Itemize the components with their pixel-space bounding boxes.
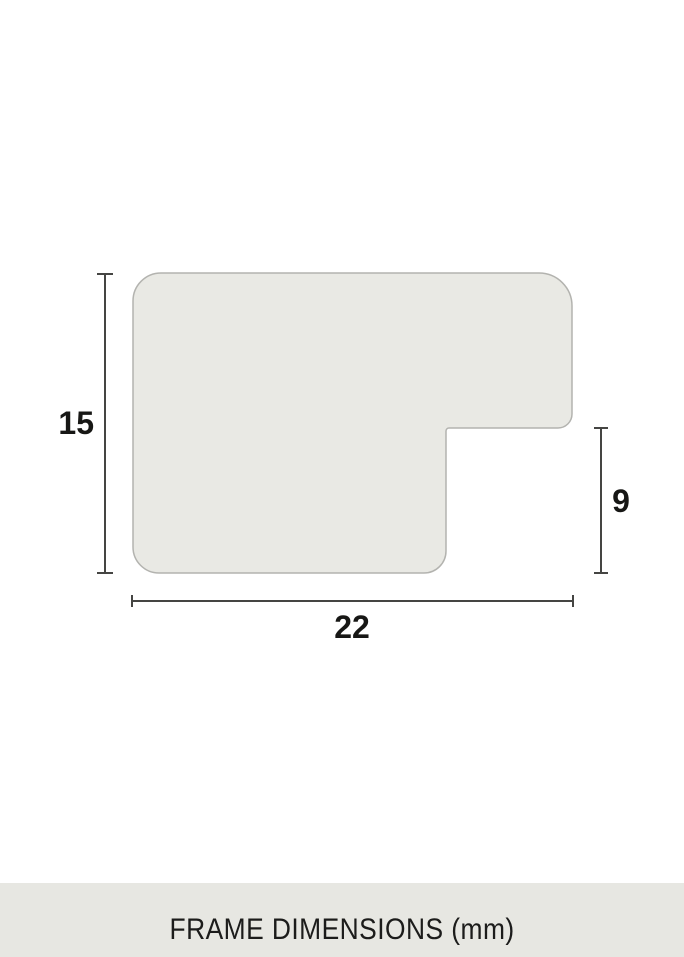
caption-band: FRAME DIMENSIONS (mm) [0,883,684,957]
height-dimension-line [97,274,113,573]
frame-dimensions-page: 15 9 22 FRAME DIMENSIONS (mm) [0,0,684,957]
rabbet-dimension-value: 9 [608,485,634,517]
rabbet-dimension-line [594,428,608,573]
frame-profile-cross-section [133,273,572,573]
height-dimension-value: 15 [48,407,94,439]
width-dimension-value: 22 [312,611,392,643]
width-dimension-line [132,595,573,607]
caption-text: FRAME DIMENSIONS (mm) [169,915,514,945]
frame-profile-drawing [0,0,684,883]
frame-profile-diagram: 15 9 22 [0,0,684,883]
